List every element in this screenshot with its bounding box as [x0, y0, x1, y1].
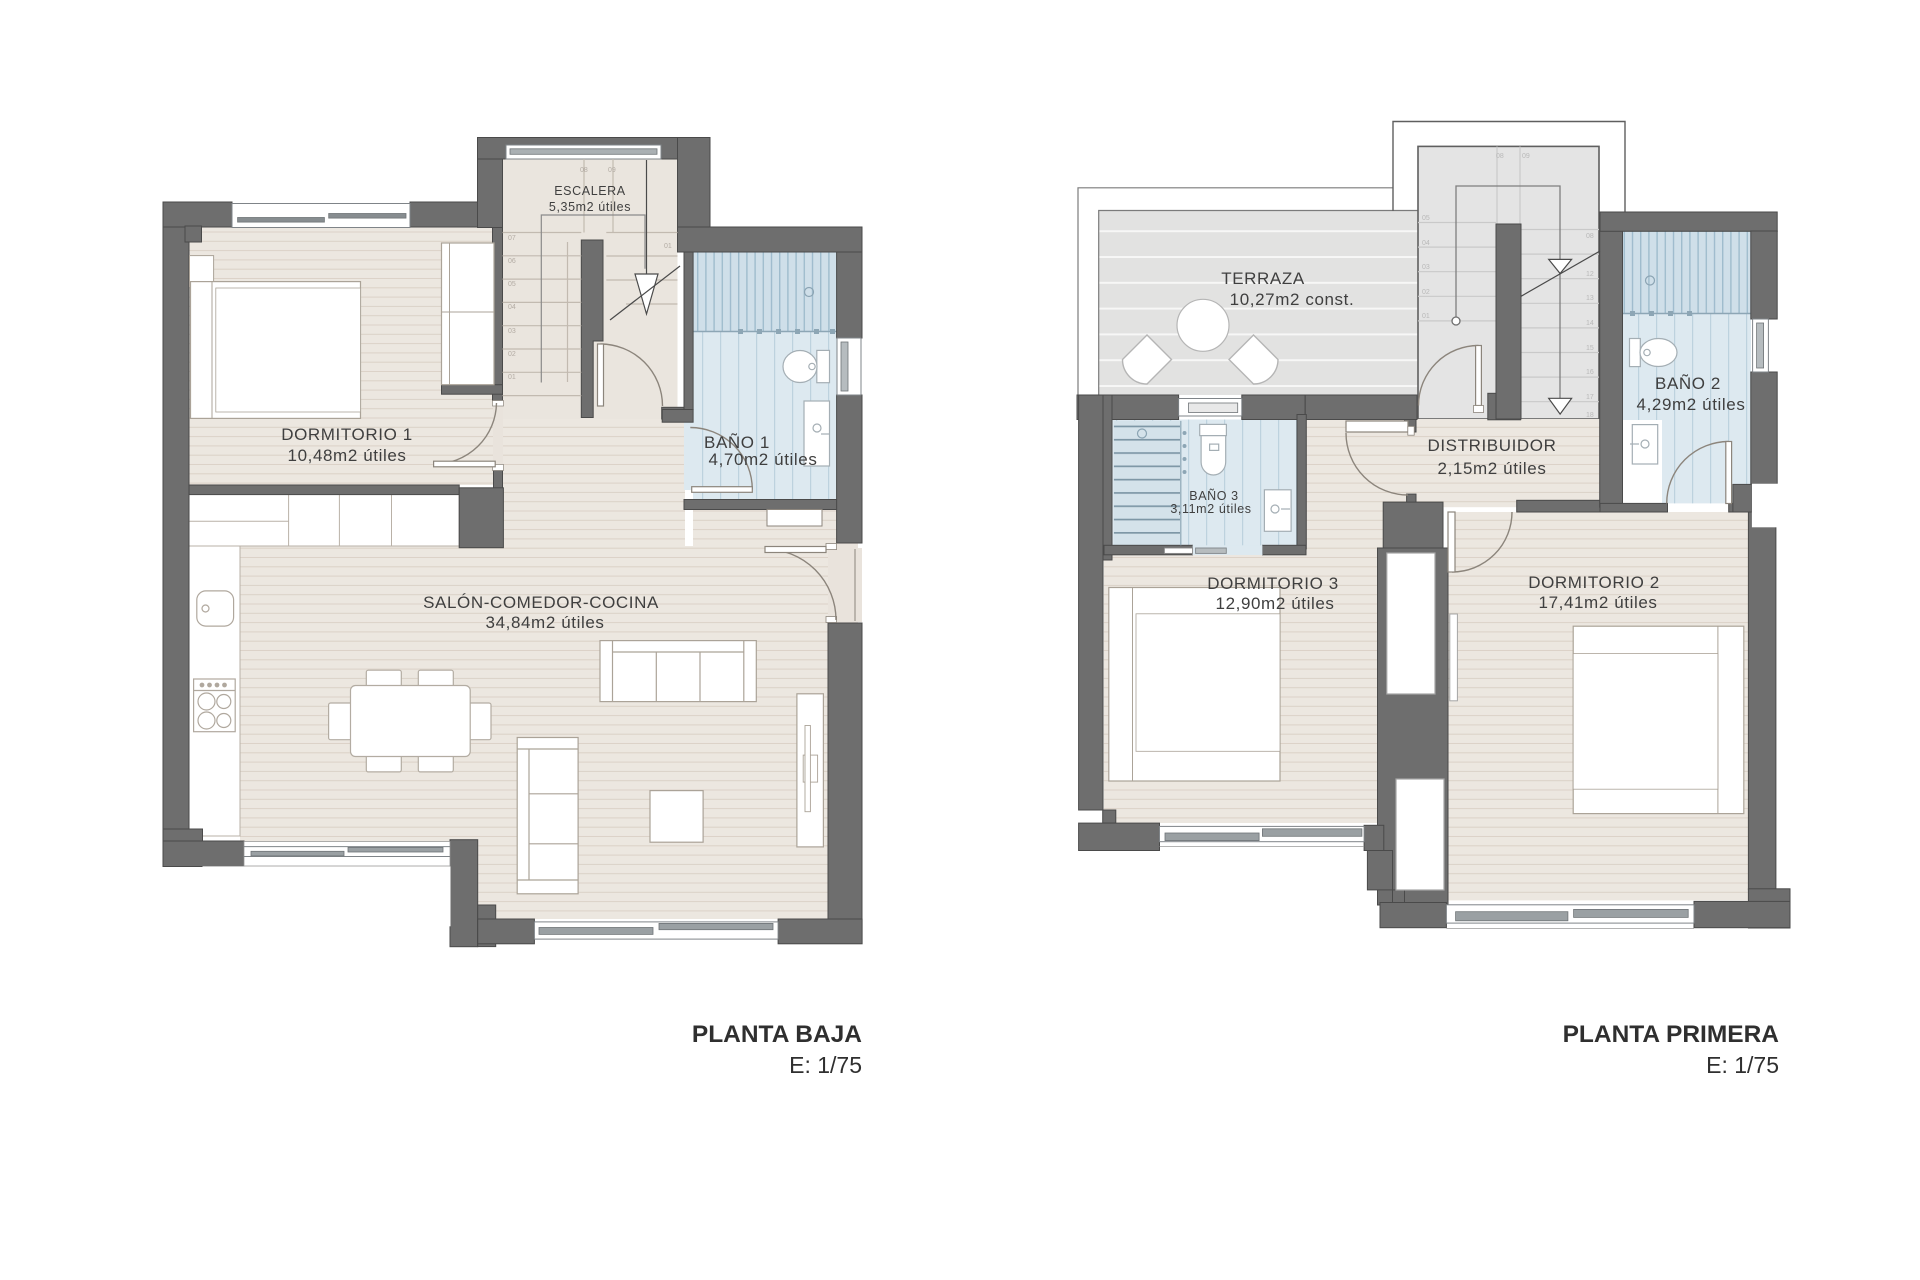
svg-text:05: 05 [1422, 215, 1430, 222]
svg-text:4,29m2 útiles: 4,29m2 útiles [1637, 395, 1746, 414]
svg-text:E: 1/75: E: 1/75 [1706, 1052, 1779, 1078]
svg-text:16: 16 [1586, 369, 1594, 376]
svg-text:01: 01 [508, 374, 516, 381]
svg-text:17: 17 [1586, 394, 1594, 401]
svg-text:13: 13 [1586, 295, 1594, 302]
svg-text:10,27m2 const.: 10,27m2 const. [1230, 290, 1355, 309]
svg-text:10,48m2 útiles: 10,48m2 útiles [288, 446, 407, 465]
svg-text:01: 01 [1422, 313, 1430, 320]
svg-text:BAÑO 2: BAÑO 2 [1655, 374, 1721, 393]
svg-text:02: 02 [508, 351, 516, 358]
svg-text:18: 18 [1586, 412, 1594, 419]
svg-text:04: 04 [1422, 240, 1430, 247]
svg-text:15: 15 [1586, 345, 1594, 352]
svg-text:E: 1/75: E: 1/75 [789, 1052, 862, 1078]
svg-text:4,70m2 útiles: 4,70m2 útiles [709, 450, 818, 469]
svg-text:DORMITORIO 3: DORMITORIO 3 [1207, 574, 1339, 593]
svg-text:03: 03 [508, 328, 516, 335]
svg-text:2,15m2 útiles: 2,15m2 útiles [1438, 459, 1547, 478]
svg-text:BAÑO 3: BAÑO 3 [1189, 489, 1238, 503]
svg-text:14: 14 [1586, 320, 1594, 327]
svg-text:12,90m2 útiles: 12,90m2 útiles [1216, 594, 1335, 613]
svg-text:SALÓN-COMEDOR-COCINA: SALÓN-COMEDOR-COCINA [423, 593, 659, 612]
svg-text:5,35m2 útiles: 5,35m2 útiles [549, 200, 631, 214]
svg-text:09: 09 [1522, 153, 1530, 160]
svg-text:02: 02 [1422, 289, 1430, 296]
svg-text:04: 04 [508, 304, 516, 311]
svg-text:DORMITORIO 2: DORMITORIO 2 [1528, 573, 1660, 592]
svg-text:17,41m2 útiles: 17,41m2 útiles [1539, 593, 1658, 612]
svg-text:12: 12 [1586, 271, 1594, 278]
svg-text:05: 05 [508, 281, 516, 288]
svg-text:3,11m2 útiles: 3,11m2 útiles [1170, 502, 1251, 516]
svg-text:DORMITORIO 1: DORMITORIO 1 [281, 425, 413, 444]
svg-text:PLANTA PRIMERA: PLANTA PRIMERA [1563, 1021, 1780, 1048]
svg-text:ESCALERA: ESCALERA [554, 184, 626, 198]
svg-text:08: 08 [1586, 233, 1594, 240]
svg-text:09: 09 [608, 167, 616, 174]
svg-text:PLANTA BAJA: PLANTA BAJA [692, 1021, 862, 1048]
svg-text:TERRAZA: TERRAZA [1221, 269, 1305, 288]
svg-text:01: 01 [664, 243, 672, 250]
svg-text:DISTRIBUIDOR: DISTRIBUIDOR [1427, 436, 1556, 455]
svg-text:08: 08 [1496, 153, 1504, 160]
svg-text:07: 07 [508, 235, 516, 242]
svg-text:06: 06 [508, 258, 516, 265]
svg-text:03: 03 [1422, 264, 1430, 271]
svg-text:34,84m2 útiles: 34,84m2 útiles [486, 613, 605, 632]
svg-text:08: 08 [580, 167, 588, 174]
